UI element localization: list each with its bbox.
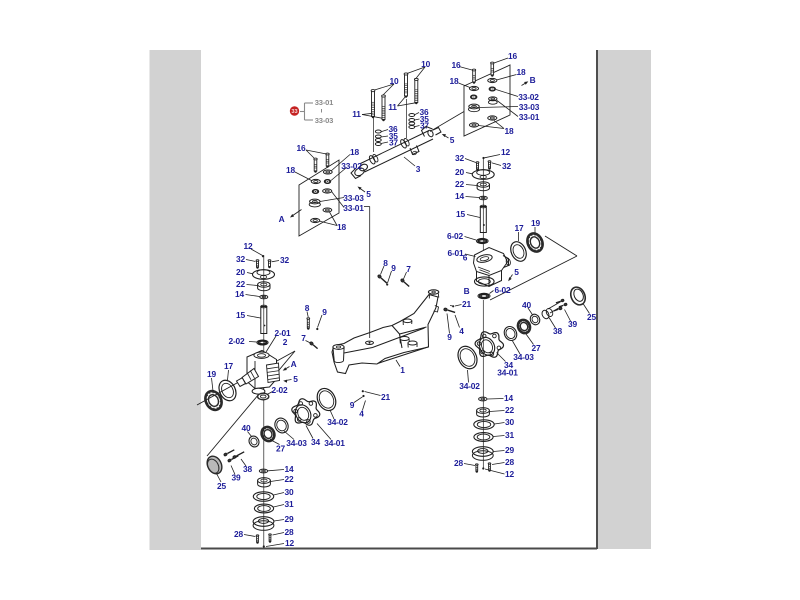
svg-text:6-02: 6-02: [495, 285, 512, 295]
svg-text:38: 38: [553, 326, 562, 336]
svg-text:5: 5: [366, 189, 371, 199]
svg-text:3: 3: [416, 164, 421, 174]
svg-text:14: 14: [455, 191, 464, 201]
svg-text:14: 14: [235, 289, 244, 299]
svg-text:33-03: 33-03: [315, 116, 333, 125]
svg-text:33: 33: [291, 109, 297, 115]
svg-text:18: 18: [337, 222, 346, 232]
svg-text:32: 32: [455, 153, 464, 163]
svg-text:7: 7: [301, 333, 306, 343]
svg-text:18: 18: [450, 76, 459, 86]
svg-text:1: 1: [400, 365, 405, 375]
svg-text:25: 25: [217, 481, 226, 491]
svg-text:18: 18: [505, 126, 514, 136]
svg-text:19: 19: [531, 218, 540, 228]
svg-text:28: 28: [454, 458, 463, 468]
svg-text:4: 4: [459, 326, 464, 336]
svg-text:33-03: 33-03: [519, 102, 540, 112]
svg-text:21: 21: [381, 392, 390, 402]
svg-text:20: 20: [236, 267, 245, 277]
svg-text:29: 29: [285, 514, 294, 524]
svg-text:33-02: 33-02: [341, 161, 362, 171]
svg-text:17: 17: [224, 361, 233, 371]
svg-text:2-02: 2-02: [272, 385, 289, 395]
svg-text:33-01: 33-01: [315, 98, 334, 107]
svg-text:B: B: [464, 286, 470, 296]
svg-text:25: 25: [587, 312, 596, 322]
svg-text:37: 37: [420, 121, 429, 131]
svg-text:18: 18: [286, 165, 295, 175]
svg-text:5: 5: [293, 374, 298, 384]
svg-text:22: 22: [505, 405, 514, 415]
svg-text:20: 20: [455, 167, 464, 177]
svg-text:40: 40: [522, 300, 531, 310]
svg-text:31: 31: [505, 430, 514, 440]
svg-text:16: 16: [508, 51, 517, 61]
svg-text:9: 9: [350, 400, 355, 410]
svg-text:12: 12: [244, 241, 253, 251]
svg-text:16: 16: [297, 143, 306, 153]
svg-text:39: 39: [232, 473, 241, 483]
svg-text:34-01: 34-01: [497, 368, 518, 378]
svg-text:10: 10: [421, 59, 430, 69]
svg-text:6-02: 6-02: [447, 231, 464, 241]
svg-text:2-02: 2-02: [229, 336, 246, 346]
svg-text:8: 8: [383, 258, 388, 268]
svg-text:40: 40: [242, 423, 251, 433]
svg-text:31: 31: [285, 499, 294, 509]
svg-text:33-01: 33-01: [343, 203, 364, 213]
svg-text:27: 27: [276, 444, 285, 454]
svg-text:15: 15: [236, 310, 245, 320]
svg-text:32: 32: [236, 254, 245, 264]
svg-text:34-01: 34-01: [324, 438, 345, 448]
svg-text:39: 39: [568, 319, 577, 329]
svg-text:30: 30: [505, 417, 514, 427]
svg-text:34-02: 34-02: [459, 381, 480, 391]
svg-text:34-03: 34-03: [286, 438, 307, 448]
svg-text:38: 38: [243, 464, 252, 474]
svg-text:34-03: 34-03: [513, 352, 534, 362]
svg-text:4: 4: [359, 409, 364, 419]
svg-text:2: 2: [283, 337, 288, 347]
svg-text:5: 5: [450, 135, 455, 145]
svg-text:33-01: 33-01: [519, 112, 540, 122]
svg-text:30: 30: [285, 487, 294, 497]
svg-text:A: A: [291, 359, 297, 369]
svg-text:21: 21: [462, 299, 471, 309]
svg-text:14: 14: [285, 464, 294, 474]
svg-text:34-02: 34-02: [327, 417, 348, 427]
svg-text:6: 6: [463, 253, 468, 263]
svg-text:A: A: [279, 214, 285, 224]
svg-text:29: 29: [505, 445, 514, 455]
svg-text:22: 22: [236, 279, 245, 289]
svg-text:9: 9: [447, 332, 452, 342]
svg-text:9: 9: [391, 263, 396, 273]
svg-text:33-02: 33-02: [518, 92, 539, 102]
svg-text:28: 28: [234, 529, 243, 539]
svg-text:28: 28: [505, 457, 514, 467]
svg-text:18: 18: [350, 147, 359, 157]
svg-text:15: 15: [456, 209, 465, 219]
svg-text:11: 11: [388, 102, 397, 112]
svg-text:19: 19: [207, 369, 216, 379]
svg-text:11: 11: [352, 109, 361, 119]
svg-text:27: 27: [532, 343, 541, 353]
svg-text:16: 16: [452, 60, 461, 70]
svg-text:34: 34: [311, 437, 320, 447]
svg-text:7: 7: [406, 264, 411, 274]
svg-text:6-01: 6-01: [448, 248, 465, 258]
svg-text:32: 32: [502, 161, 511, 171]
svg-text:B: B: [530, 75, 536, 85]
svg-text:9: 9: [322, 307, 327, 317]
svg-text:32: 32: [280, 255, 289, 265]
svg-text:12: 12: [505, 469, 514, 479]
svg-text:22: 22: [455, 179, 464, 189]
svg-text:18: 18: [517, 67, 526, 77]
svg-text:8: 8: [305, 303, 310, 313]
svg-text:10: 10: [390, 76, 399, 86]
svg-text:33-03: 33-03: [343, 193, 364, 203]
svg-text:28: 28: [285, 527, 294, 537]
svg-text:17: 17: [515, 223, 524, 233]
svg-text:5: 5: [514, 267, 519, 277]
svg-text:12: 12: [501, 147, 510, 157]
svg-text:12: 12: [285, 538, 294, 548]
svg-text:14: 14: [504, 393, 513, 403]
svg-text:22: 22: [285, 474, 294, 484]
